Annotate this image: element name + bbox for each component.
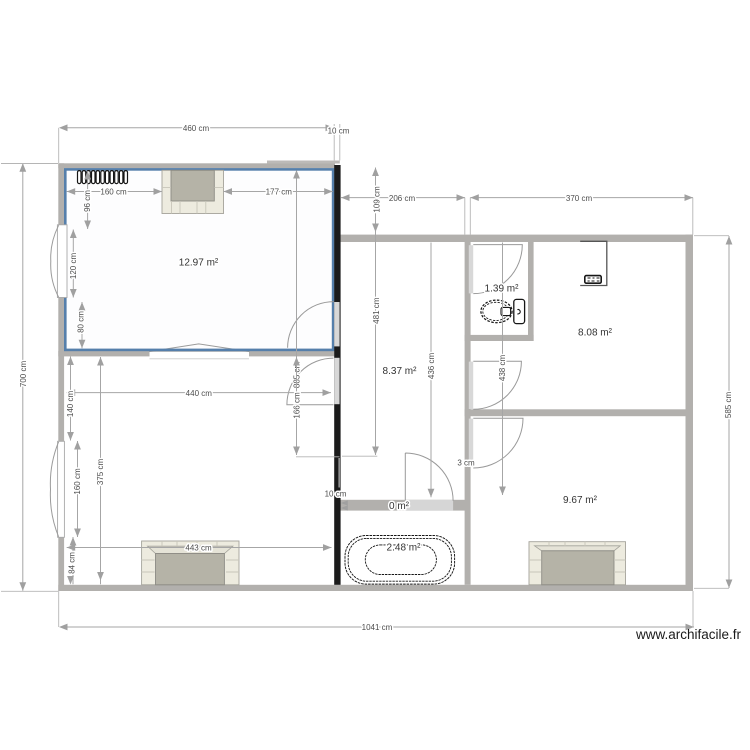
svg-text:80 cm: 80 cm — [77, 311, 86, 333]
svg-text:10 cm: 10 cm — [325, 490, 347, 499]
svg-text:1.39 m²: 1.39 m² — [485, 284, 520, 295]
svg-text:585 cm: 585 cm — [724, 392, 733, 419]
svg-text:10 cm: 10 cm — [328, 127, 350, 136]
svg-text:885 cm: 885 cm — [293, 362, 302, 389]
svg-text:160 cm: 160 cm — [73, 468, 82, 495]
svg-text:120 cm: 120 cm — [69, 253, 78, 280]
svg-text:160 cm: 160 cm — [100, 188, 127, 197]
svg-text:12.97 m²: 12.97 m² — [179, 258, 219, 269]
svg-text:438 cm: 438 cm — [498, 355, 507, 382]
svg-text:206 cm: 206 cm — [389, 194, 416, 203]
svg-text:375 cm: 375 cm — [96, 459, 105, 486]
svg-text:140 cm: 140 cm — [66, 391, 75, 418]
svg-text:370 cm: 370 cm — [566, 194, 593, 203]
svg-text:700 cm: 700 cm — [19, 361, 28, 388]
svg-text:443 cm: 443 cm — [185, 544, 212, 553]
svg-text:www.archifacile.fr: www.archifacile.fr — [635, 627, 742, 642]
svg-text:8.37 m²: 8.37 m² — [383, 366, 418, 377]
svg-text:166 cm: 166 cm — [293, 392, 302, 419]
svg-text:177 cm: 177 cm — [266, 188, 293, 197]
svg-text:109 cm: 109 cm — [373, 186, 382, 213]
svg-text:460 cm: 460 cm — [183, 124, 210, 133]
svg-text:1041 cm: 1041 cm — [362, 623, 393, 632]
svg-text:440 cm: 440 cm — [186, 389, 213, 398]
svg-text:481 cm: 481 cm — [372, 297, 381, 324]
svg-text:96 cm: 96 cm — [83, 190, 92, 212]
svg-text:436 cm: 436 cm — [427, 353, 436, 380]
svg-text:3 cm: 3 cm — [457, 459, 475, 468]
svg-text:9.67 m²: 9.67 m² — [563, 495, 598, 506]
svg-text:8.08 m²: 8.08 m² — [578, 328, 613, 339]
svg-text:2.48 m²: 2.48 m² — [387, 543, 422, 554]
svg-text:84 cm: 84 cm — [68, 552, 77, 574]
svg-text:0 m²: 0 m² — [389, 501, 410, 512]
